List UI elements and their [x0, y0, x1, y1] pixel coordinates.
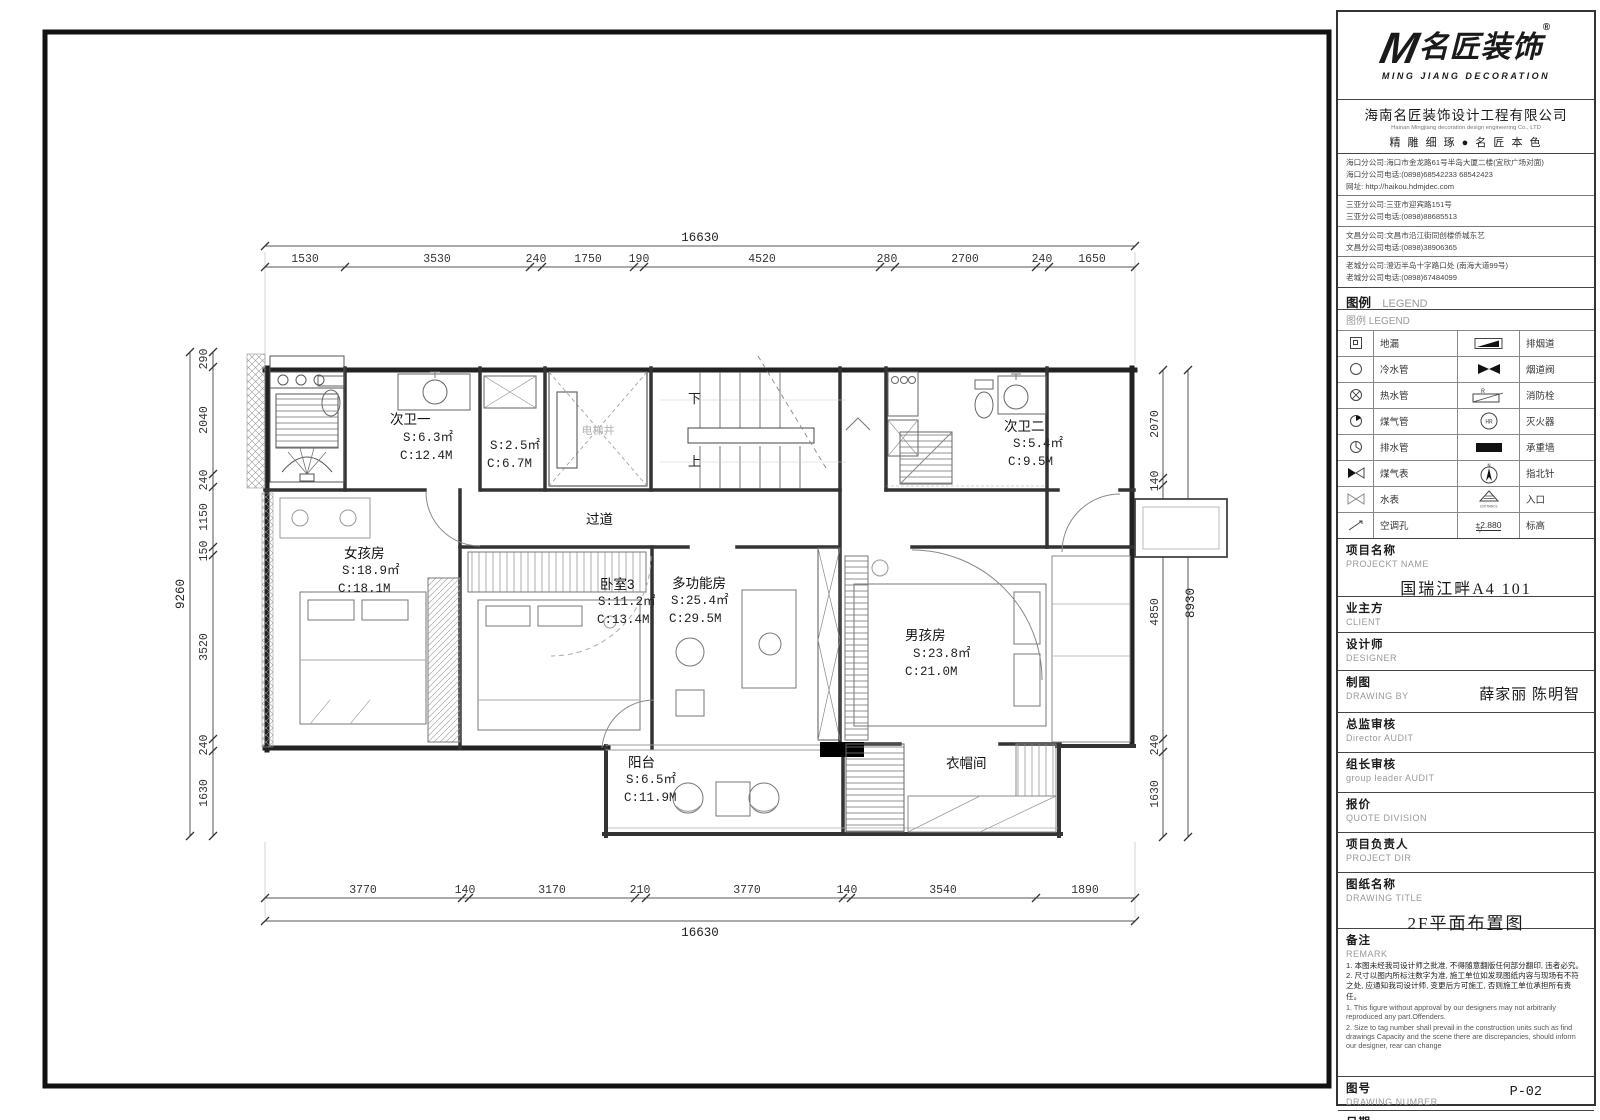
field-leader-audit: 组长审核 group leader AUDIT — [1338, 753, 1594, 793]
legend-row: 热水管 R 消防栓 — [1338, 382, 1594, 408]
field-label-zh: 设计师 — [1346, 636, 1586, 652]
dim-top-8: 240 — [1032, 253, 1053, 266]
dim-left-3: 1150 — [198, 503, 211, 531]
floor-drain-icon — [1350, 337, 1362, 349]
legend-label: 承重墙 — [1520, 435, 1592, 460]
legend-header-zh: 图例 — [1346, 296, 1371, 310]
legend-row: 煤气表 N 指北针 — [1338, 460, 1594, 486]
stairs-down-label: 下 — [688, 392, 701, 407]
dim-right-1: 140 — [1149, 471, 1162, 492]
legend-row: 冷水管 烟道阀 — [1338, 356, 1594, 382]
field-project-dir: 项目负责人 PROJECT DIR — [1338, 833, 1594, 873]
room-label-cloak: 衣帽间 — [946, 756, 987, 771]
field-label-en: REMARK — [1346, 949, 1586, 959]
field-label-zh: 组长审核 — [1346, 756, 1586, 772]
branch-wenchang: 文昌分公司:文昌市沿江街同创楼侨城东艺 文昌分公司电话:(0898)389063… — [1338, 227, 1594, 258]
field-project-name: 项目名称 PROJECKT NAME 国瑞江畔A4 101 — [1338, 539, 1594, 597]
legend-subheader-en: LEGEND — [1369, 316, 1410, 327]
logo-name: 名匠装饰 — [1419, 31, 1543, 64]
dim-top-2: 240 — [526, 253, 547, 266]
fire-extinguisher-letters: HR — [1485, 419, 1493, 426]
dim-left-total: 9260 — [174, 579, 188, 609]
room-perimeter-girl: C:18.1M — [338, 582, 391, 596]
dim-left-6: 240 — [198, 735, 211, 756]
furniture-multi-room — [676, 590, 796, 716]
title-block: M名匠装饰® MING JIANG DECORATION 海南名匠装饰设计工程有… — [1336, 10, 1596, 1106]
dim-top-4: 190 — [629, 253, 650, 266]
dim-bottom-3: 210 — [630, 884, 651, 897]
legend-label: 空调孔 — [1374, 513, 1458, 538]
room-area-boy: S:23.8㎡ — [913, 646, 971, 661]
logo-registered-mark: ® — [1543, 22, 1551, 33]
flue-valve-icon — [1476, 362, 1502, 376]
north-letter: N — [1487, 462, 1490, 469]
fire-extinguisher-icon: HR — [1479, 411, 1499, 431]
legend-label: 灭火器 — [1520, 409, 1592, 434]
field-label-en: PROJECKT NAME — [1346, 559, 1586, 569]
field-label-zh: 总监审核 — [1346, 716, 1586, 732]
room-perimeter-balcony: C:11.9M — [624, 791, 677, 805]
legend-subheader-zh: 图例 — [1346, 316, 1366, 327]
drawing-number-value: P-02 — [1510, 1085, 1542, 1100]
dim-top-5: 4520 — [748, 253, 776, 266]
dim-right-total: 8930 — [1184, 588, 1198, 618]
floor-plan-svg: 16630 1530 3530 240 1750 190 4520 280 27… — [0, 0, 1332, 1120]
legend-label: 地漏 — [1374, 331, 1458, 356]
legend-label: 排水管 — [1374, 435, 1458, 460]
room-perimeter-cw1: C:12.4M — [400, 449, 453, 463]
remark-note: 1. 本图未经我司设计师之批准, 不得随意翻版任何部分翻印, 违者必究。 — [1346, 961, 1586, 971]
room-perimeter-bed3: C:13.4M — [597, 613, 650, 627]
field-designer: 设计师 DESIGNER — [1338, 633, 1594, 671]
field-label-en: DRAWING NUMBER — [1346, 1097, 1586, 1107]
legend-row: 排水管 承重墙 — [1338, 434, 1594, 460]
field-label-zh: 报价 — [1346, 796, 1586, 812]
field-label-zh: 图纸名称 — [1346, 876, 1586, 892]
legend-header-en: LEGEND — [1382, 298, 1427, 310]
room-label-girl: 女孩房 — [344, 545, 385, 561]
fire-hydrant-icon: R — [1471, 386, 1507, 404]
legend-subheader: 图例 LEGEND — [1338, 310, 1594, 330]
dim-right-3: 240 — [1149, 735, 1162, 756]
legend-table: 图例 LEGEND 地漏 排烟道 冷水管 烟道阀 热水管 R 消防栓 煤气管 H… — [1338, 310, 1594, 539]
company-logo: M名匠装饰® MING JIANG DECORATION — [1338, 12, 1594, 100]
ac-hole-icon — [1347, 518, 1365, 532]
project-name-value: 国瑞江畔A4 101 — [1346, 575, 1586, 599]
room-area-cw1: S:6.3㎡ — [403, 430, 454, 445]
legend-label: 排烟道 — [1520, 331, 1592, 356]
dim-left-5: 3520 — [198, 633, 211, 661]
field-label-en: Director AUDIT — [1346, 733, 1586, 743]
north-arrow-icon: N — [1477, 461, 1501, 485]
remark-note: 2. 尺寸以图内所标注数字为准, 施工单位如发现图纸内容与现场有不符之处, 应通… — [1346, 971, 1586, 1002]
legend-label: 煤气管 — [1374, 409, 1458, 434]
field-director-audit: 总监审核 Director AUDIT — [1338, 713, 1594, 753]
field-remark: 备注 REMARK 1. 本图未经我司设计师之批准, 不得随意翻版任何部分翻印,… — [1338, 929, 1594, 1077]
elevator-shaft: 电梯井 — [549, 372, 647, 486]
dim-bottom-4: 3770 — [733, 884, 761, 897]
room-label-bed3: 卧室3 — [600, 576, 635, 592]
branch-line: 网址: http://haikou.hdmjdec.com — [1346, 181, 1588, 193]
room-label-cw1: 次卫一 — [390, 412, 431, 427]
field-label-en: DRAWING TITLE — [1346, 893, 1586, 903]
dim-top-total: 16630 — [681, 231, 719, 245]
gas-pipe-icon — [1349, 414, 1363, 428]
bath-cw1-fixtures — [318, 372, 536, 416]
entrance-caption: ENTRANCE — [1480, 506, 1497, 510]
field-label-zh: 日期 — [1346, 1114, 1586, 1120]
room-area-girl: S:18.9㎡ — [342, 563, 400, 578]
drain-pipe-icon — [1349, 440, 1363, 454]
field-label-en: DESIGNER — [1346, 653, 1586, 663]
dim-bottom-7: 1890 — [1071, 884, 1099, 897]
furniture-boy-room — [845, 556, 1130, 742]
field-drawing-title: 图纸名称 DRAWING TITLE 2F平面布置图 — [1338, 873, 1594, 929]
branch-line: 文昌分公司:文昌市沿江街同创楼侨城东艺 — [1346, 230, 1588, 242]
dim-left-4: 150 — [198, 541, 211, 562]
dim-top: 16630 1530 3530 240 1750 190 4520 280 27… — [261, 231, 1139, 364]
level-mark-icon: ±2.880 — [1476, 520, 1502, 531]
dim-right: 8930 2070 140 4850 240 1630 — [1149, 366, 1198, 841]
field-drawing-number: 图号 DRAWING NUMBER P-02 — [1338, 1077, 1594, 1111]
dim-top-3: 1750 — [574, 253, 602, 266]
room-area-cw2: S:5.4㎡ — [1013, 436, 1064, 451]
stairs-up-label: 上 — [688, 455, 701, 470]
legend-row: 煤气管 HR 灭火器 — [1338, 408, 1594, 434]
dim-top-1: 3530 — [423, 253, 451, 266]
room-area-store: S:2.5㎡ — [490, 438, 541, 453]
field-label-en: group leader AUDIT — [1346, 773, 1586, 783]
dim-bottom-6: 3540 — [929, 884, 957, 897]
dim-top-0: 1530 — [291, 253, 319, 266]
field-label-en: QUOTE DIVISION — [1346, 813, 1586, 823]
legend-label: 冷水管 — [1374, 357, 1458, 382]
dim-bottom-0: 3770 — [349, 884, 377, 897]
field-drawing-by: 制图 DRAWING BY 薛家丽 陈明智 — [1338, 671, 1594, 713]
entrance-icon: ENTRANCE — [1476, 489, 1502, 509]
legend-label: 指北针 — [1520, 461, 1592, 486]
branch-line: 文昌分公司电话:(0898)38906365 — [1346, 242, 1588, 254]
room-label-cw2: 次卫二 — [1004, 419, 1045, 434]
legend-header: 图例 LEGEND — [1338, 288, 1594, 310]
room-label-corridor: 过道 — [586, 512, 613, 527]
branch-line: 三亚分公司:三亚市迎宾路151号 — [1346, 199, 1588, 211]
legend-row: 水表 ENTRANCE 入口 — [1338, 486, 1594, 512]
room-perimeter-multi: C:29.5M — [669, 612, 722, 626]
branch-line: 老城分公司:澄迈半岛十字路口处 (南海大道99号) — [1346, 260, 1588, 272]
field-label-zh: 业主方 — [1346, 600, 1586, 616]
field-quote: 报价 QUOTE DIVISION — [1338, 793, 1594, 833]
legend-label: 水表 — [1374, 487, 1458, 512]
drawing-sheet: 16630 1530 3530 240 1750 190 4520 280 27… — [0, 0, 1600, 1120]
room-area-balcony: S:6.5㎡ — [626, 772, 677, 787]
field-label-en: PROJECT DIR — [1346, 853, 1586, 863]
branch-haikou: 海口分公司:海口市金龙路61号半岛大厦二楼(宜欣广场对面) 海口分公司电话:(0… — [1338, 154, 1594, 196]
legend-label: 消防栓 — [1520, 383, 1592, 408]
room-perimeter-cw2: C:9.5M — [1008, 455, 1053, 469]
branch-contacts: 海口分公司:海口市金龙路61号半岛大厦二楼(宜欣广场对面) 海口分公司电话:(0… — [1338, 154, 1594, 288]
dim-left-2: 240 — [198, 470, 211, 491]
legend-row: 空调孔 ±2.880 标高 — [1338, 512, 1594, 538]
water-meter-icon — [1346, 492, 1366, 506]
hot-water-pipe-icon — [1349, 388, 1363, 402]
drawing-by-value: 薛家丽 陈明智 — [1479, 683, 1580, 704]
dim-right-2: 4850 — [1149, 598, 1162, 626]
room-label-boy: 男孩房 — [905, 628, 946, 643]
dim-bottom-1: 140 — [455, 884, 476, 897]
remark-note: 1. This figure without approval by our d… — [1346, 1003, 1586, 1022]
field-label-zh: 备注 — [1346, 932, 1586, 948]
room-area-bed3: S:11.2㎡ — [598, 594, 656, 609]
gas-meter-icon — [1346, 466, 1366, 480]
dim-top-7: 2700 — [951, 253, 979, 266]
remark-note: 2. Size to tag number shall prevail in t… — [1346, 1023, 1586, 1051]
field-label-en: CLIENT — [1346, 617, 1586, 627]
dim-bottom-2: 3170 — [538, 884, 566, 897]
room-label-multi: 多功能房 — [672, 575, 726, 591]
load-bearing-wall-icon — [1476, 443, 1502, 452]
room-area-multi: S:25.4㎡ — [671, 593, 729, 608]
equipment-block — [270, 356, 344, 482]
dim-left: 9260 290 2040 240 1150 150 3520 240 1630 — [174, 348, 217, 840]
logo-m-icon: M — [1377, 29, 1423, 69]
legend-row: 地漏 排烟道 — [1338, 330, 1594, 356]
field-label-zh: 项目负责人 — [1346, 836, 1586, 852]
dim-right-0: 2070 — [1149, 410, 1162, 438]
legend-label: 烟道阀 — [1520, 357, 1592, 382]
branch-line: 海口分公司:海口市金龙路61号半岛大厦二楼(宜欣广场对面) — [1346, 157, 1588, 169]
branch-line: 老城分公司电话:(0898)67484099 — [1346, 272, 1588, 284]
legend-label: 标高 — [1520, 513, 1592, 538]
furniture-balcony — [608, 782, 1058, 828]
furniture-girl-room — [280, 498, 460, 742]
exhaust-duct-icon — [1474, 337, 1504, 350]
legend-label: 入口 — [1520, 487, 1592, 512]
field-label-zh: 图号 — [1346, 1080, 1586, 1096]
dim-left-1: 2040 — [198, 406, 211, 434]
level-value: ±2.880 — [1476, 520, 1502, 530]
legend-label: 热水管 — [1374, 383, 1458, 408]
dim-bottom-total: 16630 — [681, 926, 719, 940]
company-name: 海南名匠装饰设计工程有限公司 — [1346, 104, 1586, 124]
branch-laocheng: 老城分公司:澄迈半岛十字路口处 (南海大道99号) 老城分公司电话:(0898)… — [1338, 257, 1594, 287]
field-client: 业主方 CLIENT — [1338, 597, 1594, 633]
branch-line: 三亚分公司电话:(0898)88685513 — [1346, 211, 1588, 223]
company-name-en: Hainan Mingjiang decoration design engin… — [1358, 124, 1574, 130]
room-perimeter-store: C:6.7M — [487, 457, 532, 471]
company-info: 海南名匠装饰设计工程有限公司 Hainan Mingjiang decorati… — [1338, 100, 1594, 154]
room-perimeter-boy: C:21.0M — [905, 665, 958, 679]
dim-left-0: 290 — [198, 349, 211, 370]
dim-right-4: 1630 — [1149, 780, 1162, 808]
field-date: 日期 DATE — [1338, 1111, 1594, 1120]
dim-left-7: 1630 — [198, 779, 211, 807]
room-label-balcony: 阳台 — [628, 755, 655, 770]
dim-bottom-5: 140 — [837, 884, 858, 897]
cold-water-pipe-icon — [1350, 363, 1362, 375]
legend-label: 煤气表 — [1374, 461, 1458, 486]
logo-wordmark: M名匠装饰® — [1346, 22, 1586, 69]
dim-bottom: 16630 3770 140 3170 210 3770 140 3540 18… — [261, 842, 1139, 940]
dim-top-9: 1650 — [1078, 253, 1106, 266]
field-label-zh: 项目名称 — [1346, 542, 1586, 558]
branch-sanya: 三亚分公司:三亚市迎宾路151号 三亚分公司电话:(0898)88685513 — [1338, 196, 1594, 227]
room-label-shaft: 电梯井 — [582, 423, 615, 438]
dim-top-6: 280 — [877, 253, 898, 266]
branch-line: 海口分公司电话:(0898)68542233 68542423 — [1346, 169, 1588, 181]
company-slogan: 精 雕 细 琢 ● 名 匠 本 色 — [1346, 134, 1586, 150]
